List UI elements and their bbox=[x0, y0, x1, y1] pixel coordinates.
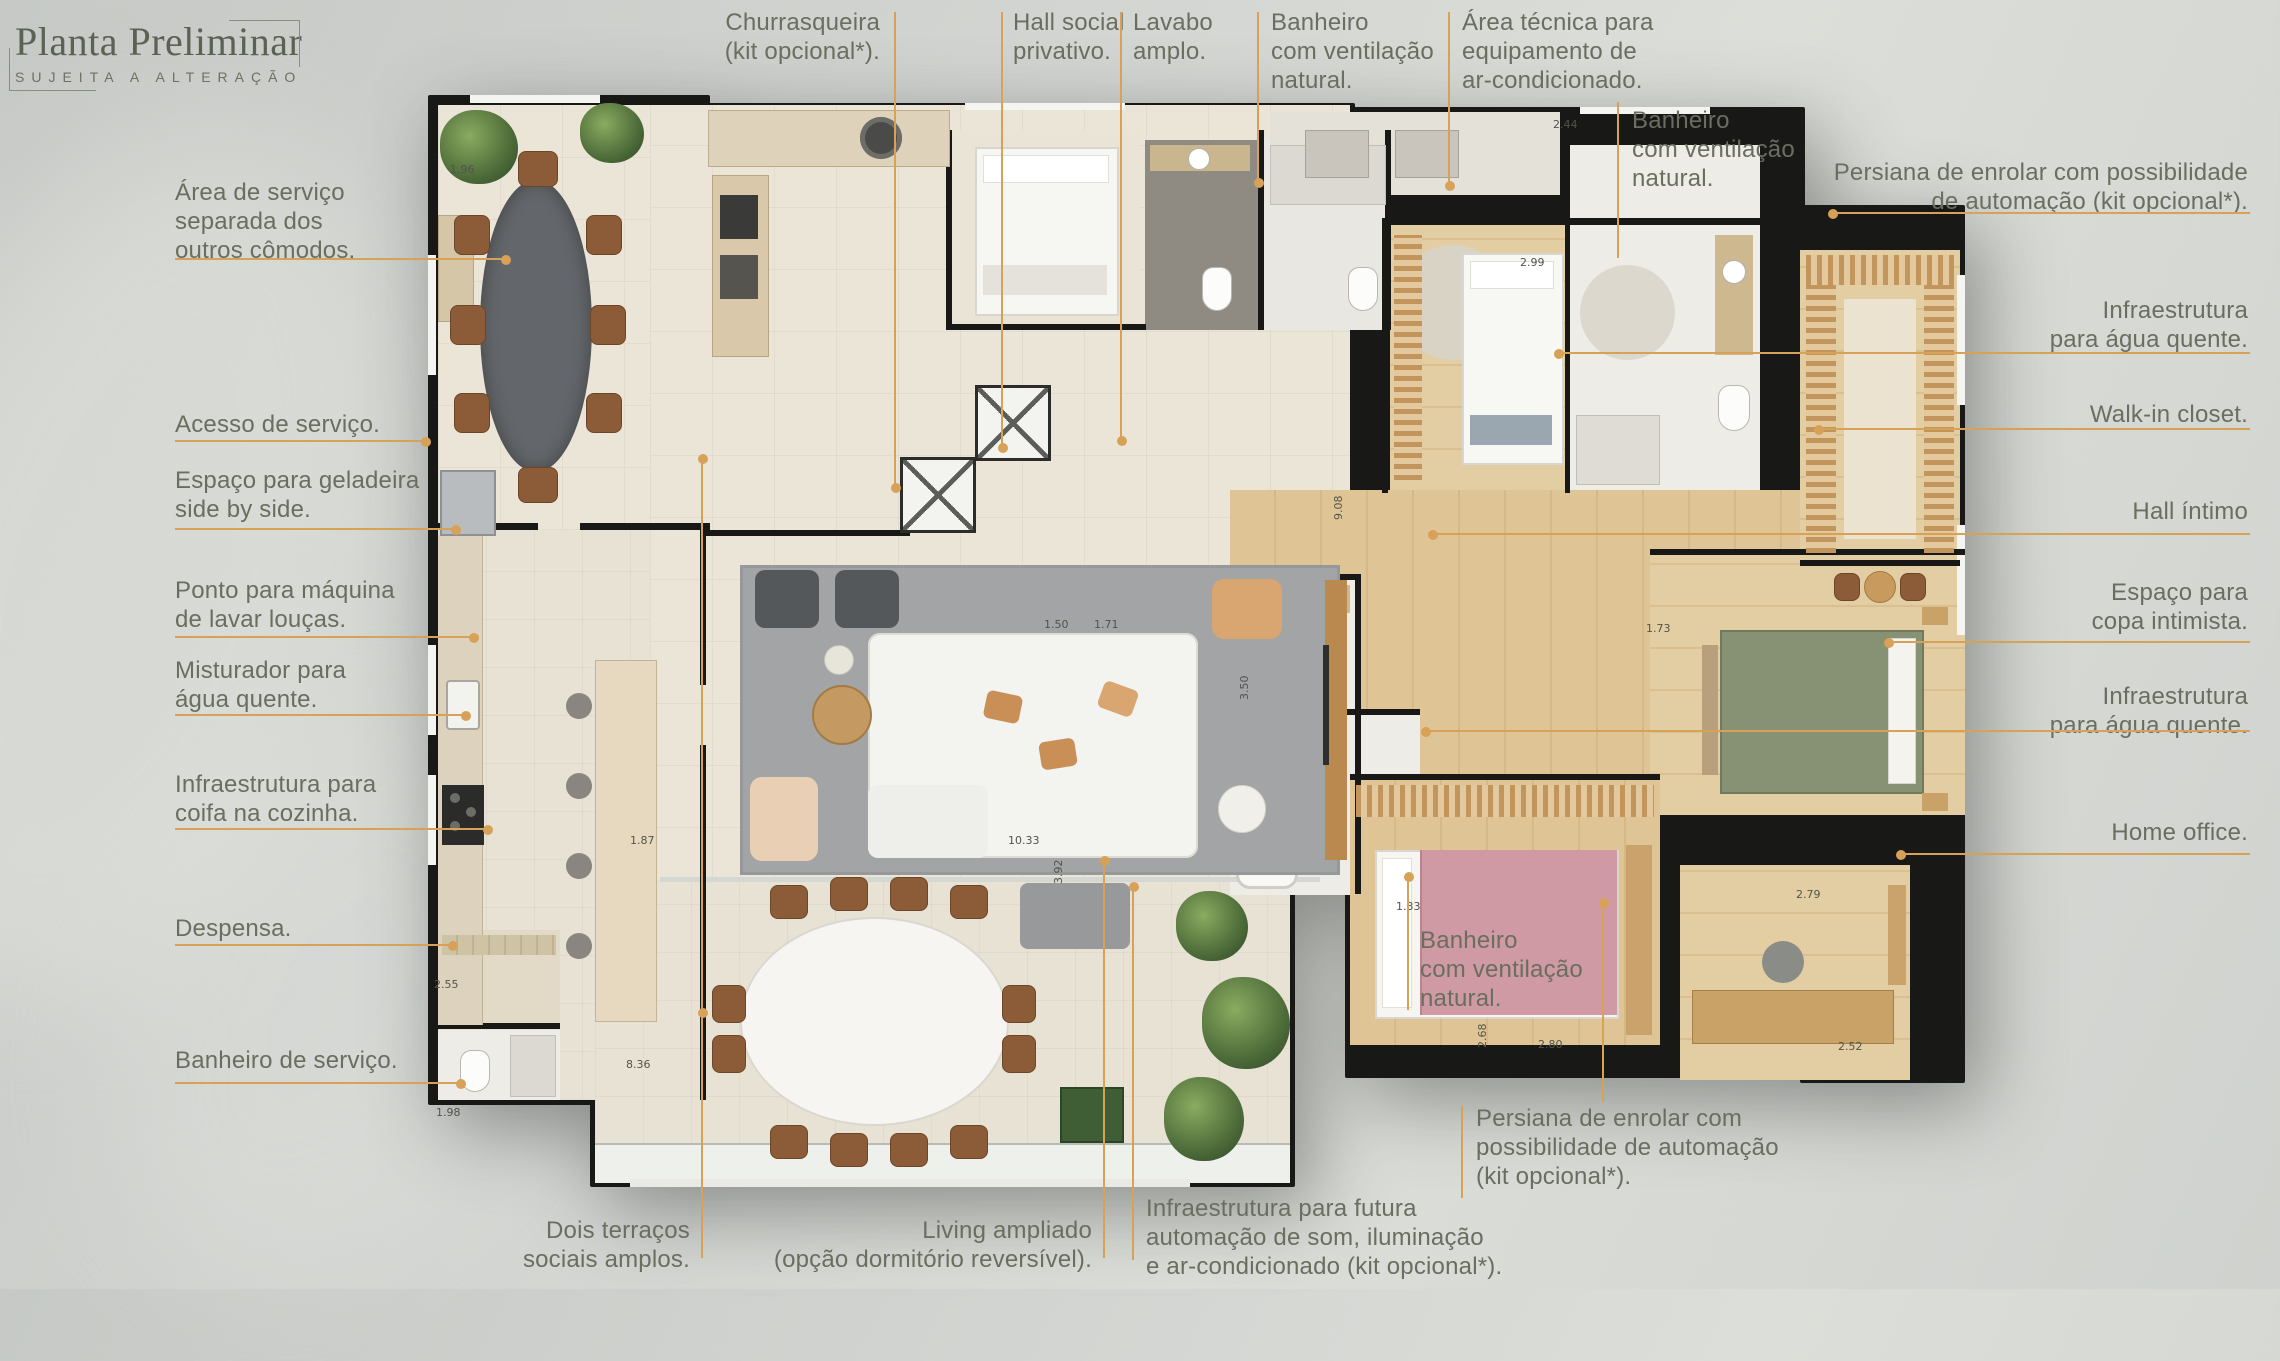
callout-banheiro-right: Banheiro com ventilação natural. bbox=[1632, 106, 1795, 193]
stool bbox=[566, 693, 592, 719]
oven bbox=[720, 255, 758, 299]
terrace-chair bbox=[830, 877, 868, 911]
callout-acesso-servico: Acesso de serviço. bbox=[175, 410, 380, 439]
leader-dot bbox=[1445, 181, 1455, 191]
fridge bbox=[440, 470, 496, 536]
leader-living-ampliado bbox=[1103, 860, 1105, 1258]
leader-dot bbox=[998, 443, 1008, 453]
shower-area bbox=[510, 1035, 556, 1097]
kitchen-sink bbox=[446, 680, 480, 730]
leader-dot bbox=[1129, 882, 1139, 892]
terrace-chair bbox=[950, 1125, 988, 1159]
leader-dot bbox=[1828, 209, 1838, 219]
terrace-chair bbox=[770, 885, 808, 919]
leader-dot bbox=[1884, 638, 1894, 648]
leader-churrasqueira bbox=[894, 12, 896, 487]
leader-dot bbox=[451, 525, 461, 535]
leader-dot bbox=[1428, 530, 1438, 540]
callout-maquina-loucas: Ponto para máquina de lavar louças. bbox=[175, 576, 395, 634]
leader-geladeira bbox=[175, 528, 455, 530]
plant bbox=[580, 103, 644, 163]
terrace-chair bbox=[1002, 1035, 1036, 1073]
dimension-label: 1.71 bbox=[1094, 618, 1119, 631]
sink bbox=[1722, 260, 1746, 284]
leader-infra-automacao bbox=[1132, 886, 1134, 1260]
wardrobe bbox=[1806, 285, 1836, 553]
leader-despensa bbox=[175, 944, 452, 946]
terrace-table-white bbox=[740, 917, 1009, 1126]
leader-dot bbox=[698, 1008, 708, 1018]
dimension-label: 8.36 bbox=[626, 1058, 651, 1071]
plant bbox=[1176, 891, 1248, 961]
terrace-chair bbox=[712, 1035, 746, 1073]
leader-persiana-right bbox=[1832, 212, 2250, 214]
planter-box bbox=[1060, 1087, 1124, 1143]
leader-acesso-servico bbox=[175, 440, 425, 442]
lavabo-sink bbox=[1188, 148, 1210, 170]
leader-copa bbox=[1888, 641, 2250, 643]
leader-dot bbox=[1404, 872, 1414, 882]
dimension-label: 2.99 bbox=[1520, 256, 1545, 269]
leader-area-servico bbox=[175, 258, 505, 260]
dimension-label: 2.52 bbox=[1838, 1040, 1863, 1053]
pouf bbox=[1218, 785, 1266, 833]
gourmet-counter bbox=[708, 110, 950, 167]
callout-hall-social: Hall social privativo. bbox=[1013, 8, 1125, 66]
office-shelf bbox=[1888, 885, 1906, 985]
toilet bbox=[1202, 267, 1232, 311]
terrace-chair bbox=[890, 1133, 928, 1167]
terrace-chair bbox=[890, 877, 928, 911]
closet-rug bbox=[1844, 299, 1916, 539]
callout-persiana-right: Persiana de enrolar com possibilidade de… bbox=[1834, 158, 2248, 216]
dining-chair bbox=[586, 393, 622, 433]
callout-dois-terracos: Dois terraços sociais amplos. bbox=[523, 1216, 690, 1274]
armchair-dark bbox=[835, 570, 899, 628]
leader-dot bbox=[1599, 898, 1609, 908]
plan-walls bbox=[420, 85, 1968, 1190]
leader-home-office bbox=[1900, 853, 2250, 855]
callout-infra-automacao: Infraestrutura para futura automação de … bbox=[1146, 1194, 1502, 1281]
leader-banheiro-bottom bbox=[1407, 876, 1409, 1010]
callout-living-ampliado: Living ampliado (opção dormitório revers… bbox=[774, 1216, 1092, 1274]
logo-frame-top-right bbox=[229, 20, 300, 67]
leader-dot bbox=[1100, 856, 1110, 866]
ac-unit bbox=[1305, 130, 1369, 178]
leader-walk-in bbox=[1818, 428, 2250, 430]
copa-table bbox=[1864, 571, 1896, 603]
wardrobe bbox=[1806, 255, 1954, 285]
leader-infra-agua-1 bbox=[1558, 352, 2250, 354]
leader-dot bbox=[1814, 425, 1824, 435]
leader-infra-agua-2 bbox=[1425, 730, 2250, 732]
dimension-label: 2.68 bbox=[1476, 1024, 1489, 1049]
leader-maquina-loucas bbox=[175, 636, 473, 638]
logo: Planta Preliminar SUJEITA A ALTERAÇÃO bbox=[15, 18, 302, 85]
dining-chair bbox=[454, 393, 490, 433]
cooktop-burner bbox=[450, 793, 460, 803]
leader-dot bbox=[1254, 178, 1264, 188]
callout-banheiro-servico: Banheiro de serviço. bbox=[175, 1046, 398, 1075]
leader-dot bbox=[421, 437, 431, 447]
tv bbox=[1323, 645, 1329, 765]
dimension-label: 1.96 bbox=[450, 163, 475, 176]
callout-infra-agua-1: Infraestrutura para água quente. bbox=[2050, 296, 2248, 354]
toilet bbox=[1348, 267, 1378, 311]
elevator bbox=[900, 457, 976, 533]
callout-area-tecnica: Área técnica para equipamento de ar-cond… bbox=[1462, 8, 1654, 95]
leader-dot bbox=[448, 941, 458, 951]
stool bbox=[566, 773, 592, 799]
dimension-label: 9.08 bbox=[1332, 496, 1345, 521]
leader-dot bbox=[461, 711, 471, 721]
leader-persiana-bottom-bar bbox=[1461, 1106, 1463, 1198]
callout-despensa: Despensa. bbox=[175, 914, 292, 943]
terrace-lounge bbox=[1020, 883, 1130, 949]
leader-misturador bbox=[175, 714, 465, 716]
leader-dot bbox=[698, 454, 708, 464]
dimension-label: 1.87 bbox=[630, 834, 655, 847]
leader-hall-social bbox=[1001, 12, 1003, 447]
despensa-shelves bbox=[442, 935, 556, 955]
terrace-chair bbox=[830, 1133, 868, 1167]
dimension-label: 10.33 bbox=[1008, 834, 1040, 847]
shower-area bbox=[1576, 415, 1660, 485]
bed-bench bbox=[1702, 645, 1718, 775]
terrace-chair bbox=[712, 985, 746, 1023]
leader-dot bbox=[1896, 850, 1906, 860]
cooktop bbox=[442, 785, 484, 845]
copa-chair bbox=[1834, 573, 1860, 601]
callout-walk-in: Walk-in closet. bbox=[2090, 400, 2248, 429]
dining-chair bbox=[454, 215, 490, 255]
leader-coifa bbox=[175, 828, 487, 830]
callout-coifa: Infraestrutura para coifa na cozinha. bbox=[175, 770, 376, 828]
dining-chair bbox=[518, 467, 558, 503]
leader-dot bbox=[1554, 349, 1564, 359]
leader-banheiro-right bbox=[1617, 102, 1619, 258]
cooktop-burner bbox=[466, 807, 476, 817]
dining-chair bbox=[590, 305, 626, 345]
wardrobe bbox=[1394, 235, 1422, 480]
logo-frame-bottom-left bbox=[9, 48, 96, 91]
dimension-label: 2.55 bbox=[434, 978, 459, 991]
plant bbox=[1202, 977, 1290, 1069]
leader-dois-terracos bbox=[701, 458, 703, 1258]
wardrobe bbox=[1356, 785, 1654, 817]
round-rug bbox=[1580, 265, 1675, 360]
dining-chair bbox=[450, 305, 486, 345]
dimension-label: 1.50 bbox=[1044, 618, 1069, 631]
vanity bbox=[1715, 235, 1753, 355]
stool bbox=[566, 933, 592, 959]
copa-chair bbox=[1900, 573, 1926, 601]
leader-dot bbox=[456, 1079, 466, 1089]
terrace-chair bbox=[950, 885, 988, 919]
dimension-label: 3.92 bbox=[1052, 860, 1065, 885]
leader-lavabo bbox=[1120, 12, 1122, 440]
dining-chair bbox=[518, 151, 558, 187]
callout-persiana-bottom: Persiana de enrolar com possibilidade de… bbox=[1476, 1104, 1779, 1191]
terrace-chair bbox=[1002, 985, 1036, 1023]
callout-misturador: Misturador para água quente. bbox=[175, 656, 346, 714]
leader-hall-intimo bbox=[1432, 533, 2250, 535]
leader-dot bbox=[891, 483, 901, 493]
leader-dot bbox=[1421, 727, 1431, 737]
dimension-label: 2.79 bbox=[1796, 888, 1821, 901]
callout-home-office: Home office. bbox=[2111, 818, 2248, 847]
dimension-label: 1.98 bbox=[436, 1106, 461, 1119]
callout-churrasqueira: Churrasqueira (kit opcional*). bbox=[725, 8, 880, 66]
armchair-cream bbox=[750, 777, 818, 861]
callout-banheiro-top: Banheiro com ventilação natural. bbox=[1271, 8, 1434, 95]
side-table bbox=[824, 645, 854, 675]
callout-geladeira: Espaço para geladeira side by side. bbox=[175, 466, 419, 524]
dimension-label: 1.73 bbox=[1646, 622, 1671, 635]
leader-persiana-bottom bbox=[1602, 902, 1604, 1102]
callout-copa: Espaço para copa intimista. bbox=[2092, 578, 2248, 636]
nightstand bbox=[1922, 793, 1948, 811]
leader-dot bbox=[1117, 436, 1127, 446]
leader-dot bbox=[469, 633, 479, 643]
dimension-label: 2.44 bbox=[1553, 118, 1578, 131]
office-desk bbox=[1692, 990, 1894, 1044]
stool bbox=[566, 853, 592, 879]
armchair-tan bbox=[1212, 579, 1282, 639]
sofa-chaise bbox=[868, 785, 988, 858]
callout-hall-intimo: Hall íntimo bbox=[2132, 497, 2248, 526]
cushion-tan bbox=[1038, 737, 1078, 770]
wardrobe bbox=[1924, 285, 1954, 553]
leader-area-tecnica bbox=[1448, 12, 1450, 185]
office-chair bbox=[1762, 941, 1804, 983]
dining-table-dark bbox=[480, 180, 592, 472]
leader-banheiro-top bbox=[1257, 12, 1259, 182]
armchair-dark bbox=[755, 570, 819, 628]
bed-pillows bbox=[1888, 638, 1916, 784]
callout-lavabo: Lavabo amplo. bbox=[1133, 8, 1213, 66]
toilet bbox=[1718, 385, 1750, 431]
coffee-table bbox=[812, 685, 872, 745]
leader-banheiro-servico bbox=[175, 1082, 460, 1084]
leader-dot bbox=[483, 825, 493, 835]
bedroom-shelf bbox=[1626, 845, 1652, 1035]
terrace-chair bbox=[770, 1125, 808, 1159]
elevator bbox=[975, 385, 1051, 461]
dimension-label: 2.80 bbox=[1538, 1038, 1563, 1051]
nightstand bbox=[1922, 607, 1948, 625]
plant bbox=[1164, 1077, 1244, 1161]
callout-area-servico: Área de serviço separada dos outros cômo… bbox=[175, 178, 355, 265]
bed-throw bbox=[1470, 415, 1552, 445]
oven bbox=[720, 195, 758, 239]
dimension-label: 3.50 bbox=[1238, 676, 1251, 701]
callout-banheiro-bottom: Banheiro com ventilação natural. bbox=[1420, 926, 1583, 1013]
floor-plan bbox=[420, 85, 1968, 1190]
leader-dot bbox=[501, 255, 511, 265]
dining-chair bbox=[586, 215, 622, 255]
